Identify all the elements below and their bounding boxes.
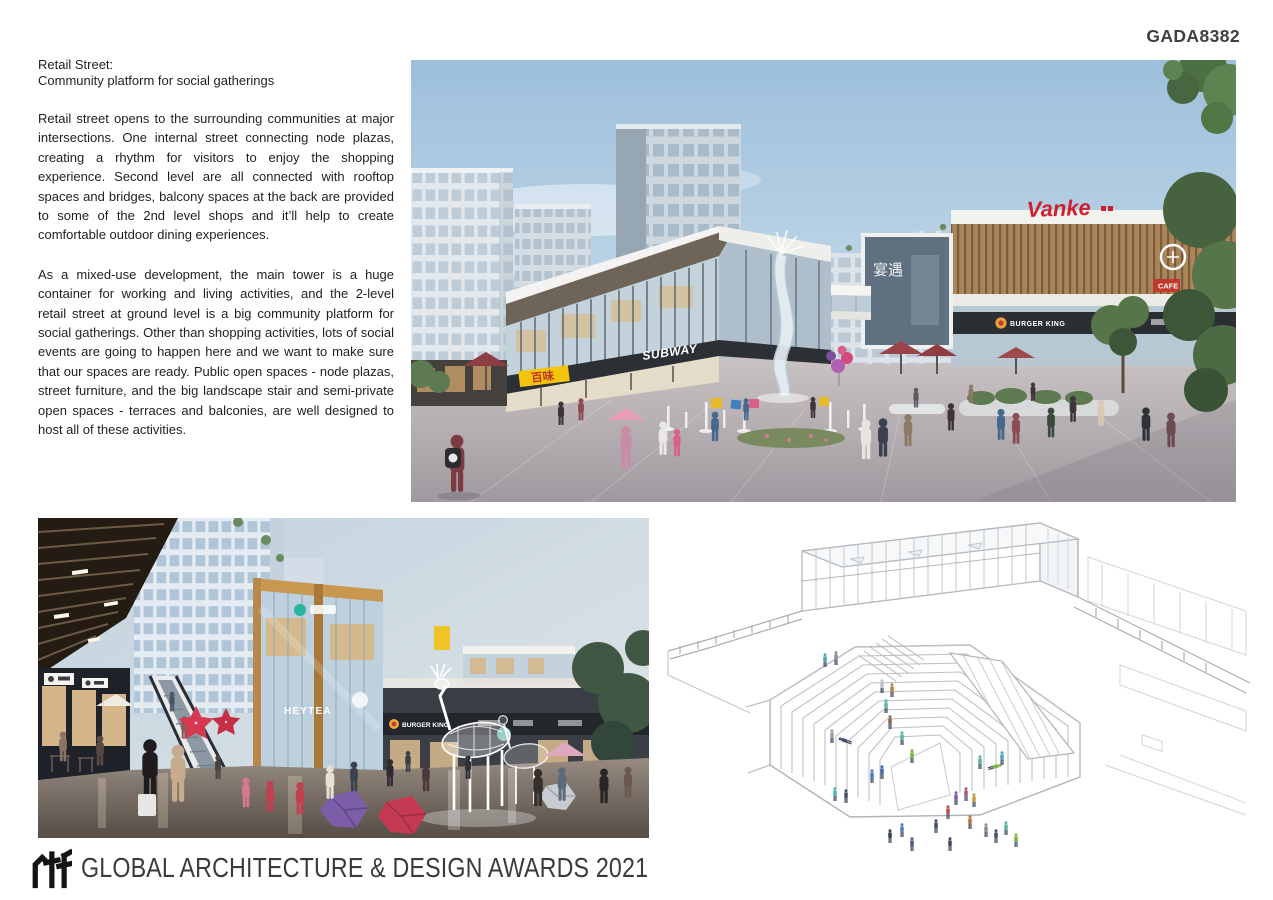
svg-text:宴遇: 宴遇 bbox=[873, 261, 903, 279]
cafe-sign: CAFE bbox=[1153, 279, 1180, 292]
article-title-line1: Retail Street: bbox=[38, 57, 394, 73]
article-title-line2: Community platform for social gatherings bbox=[38, 73, 394, 89]
render-night-illustration: HEYTEA BURGER KING bbox=[38, 518, 649, 838]
vanke-logo: Vanke bbox=[1026, 195, 1091, 222]
render-night-street: HEYTEA BURGER KING bbox=[38, 518, 649, 838]
banquet-glass-box: 宴遇 bbox=[863, 235, 951, 347]
yellow-tea-sign bbox=[434, 626, 450, 650]
article-text-block: Retail Street: Community platform for so… bbox=[38, 57, 394, 440]
left-storefronts bbox=[38, 668, 134, 783]
article-paragraph-2: As a mixed-use development, the main tow… bbox=[38, 265, 394, 440]
presentation-board: GADA8382 Retail Street: Community platfo… bbox=[0, 0, 1273, 900]
entry-code: GADA8382 bbox=[1146, 26, 1240, 47]
svg-text:CAFE: CAFE bbox=[1158, 282, 1178, 291]
article-paragraph-1: Retail street opens to the surrounding c… bbox=[38, 109, 394, 245]
svg-text:BURGER KING: BURGER KING bbox=[1010, 321, 1065, 328]
heytea-sign: HEYTEA bbox=[284, 706, 332, 717]
footer: GLOBAL ARCHITECTURE & DESIGN AWARDS 2021 bbox=[30, 845, 752, 891]
upper-glass-bridge bbox=[463, 646, 575, 684]
shopping-bag bbox=[138, 794, 156, 816]
svg-text:BURGER KING: BURGER KING bbox=[402, 722, 449, 729]
teal-logo bbox=[294, 604, 306, 616]
awards-title: GLOBAL ARCHITECTURE & DESIGN AWARDS 2021 bbox=[81, 852, 648, 884]
render-axon-illustration bbox=[650, 515, 1255, 855]
rtf-logo-icon bbox=[30, 846, 72, 890]
heytea-pavilion: HEYTEA bbox=[253, 578, 383, 784]
flower-bed bbox=[737, 428, 845, 448]
render-axon-stair bbox=[650, 515, 1255, 855]
render-main-plaza: BURGER KING CAFE Vanke 宴遇 bbox=[411, 60, 1236, 502]
render-main-illustration: BURGER KING CAFE Vanke 宴遇 bbox=[411, 60, 1236, 502]
